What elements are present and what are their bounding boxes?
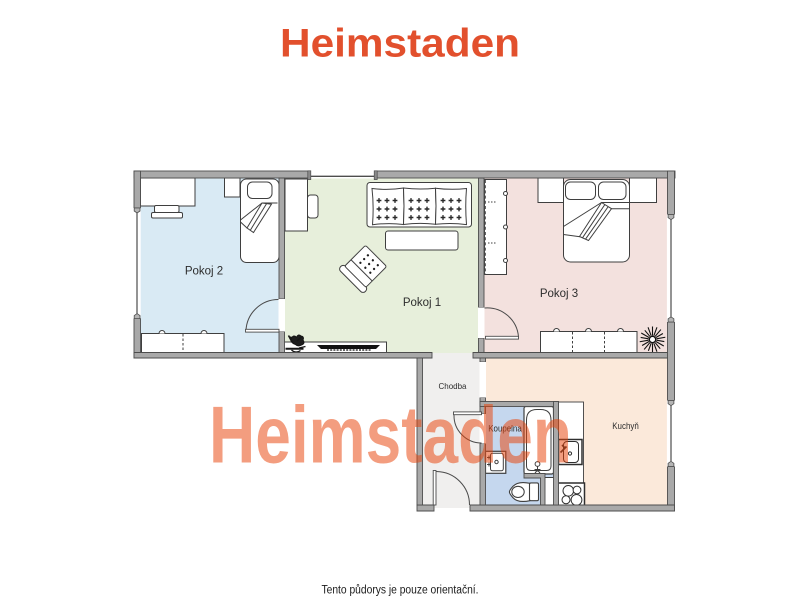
- svg-text:Chodba: Chodba: [439, 381, 467, 391]
- svg-text:Pokoj 3: Pokoj 3: [540, 288, 578, 300]
- svg-text:Heimstaden: Heimstaden: [209, 391, 572, 481]
- svg-text:Pokoj 1: Pokoj 1: [403, 297, 441, 309]
- svg-text:Pokoj 2: Pokoj 2: [185, 266, 223, 278]
- svg-text:Tento půdorys je pouze orienta: Tento půdorys je pouze orientační.: [322, 585, 479, 597]
- svg-text:Heimstaden: Heimstaden: [280, 22, 520, 66]
- svg-text:Kuchyň: Kuchyň: [612, 421, 639, 432]
